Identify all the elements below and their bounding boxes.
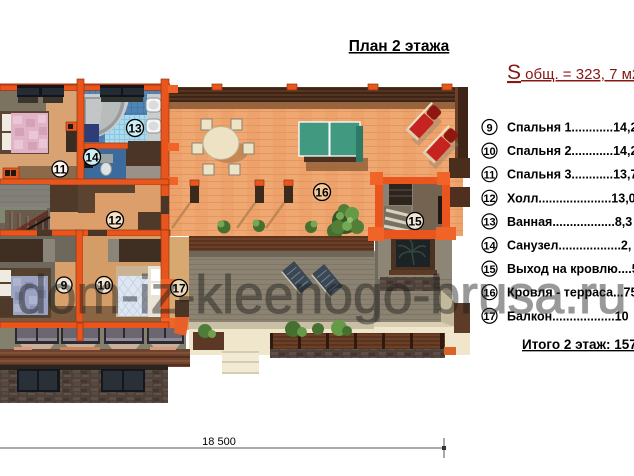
svg-text:14: 14 (85, 151, 99, 165)
svg-text:Ванная..................8,3: Ванная..................8,3 (507, 215, 632, 229)
svg-text:План 2 этажа: План 2 этажа (349, 38, 450, 55)
svg-text:16: 16 (315, 186, 329, 200)
svg-text:Холл.....................13,0: Холл.....................13,0 (507, 191, 634, 205)
svg-text:12: 12 (483, 193, 495, 205)
svg-text:Спальня 2............14,2: Спальня 2............14,2 (507, 144, 634, 158)
svg-text:10: 10 (483, 146, 495, 158)
svg-text:Спальня 1............14,2: Спальня 1............14,2 (507, 121, 634, 135)
svg-text:Санузел..................2,: Санузел..................2, (507, 239, 631, 253)
svg-text:Итого 2 этаж: 157,: Итого 2 этаж: 157, (522, 337, 634, 352)
svg-text:11: 11 (484, 170, 496, 182)
svg-text:13: 13 (128, 122, 142, 136)
svg-text:dom-iz-kleenogo-brusa.ru: dom-iz-kleenogo-brusa.ru (17, 266, 627, 325)
svg-text:9: 9 (486, 122, 492, 134)
svg-text:15: 15 (408, 215, 422, 229)
svg-text:Спальня 3............13,7: Спальня 3............13,7 (507, 168, 634, 182)
svg-text:13: 13 (483, 217, 495, 229)
svg-text:11: 11 (54, 163, 67, 177)
svg-text:14: 14 (483, 240, 496, 252)
svg-text:18 500: 18 500 (202, 436, 236, 448)
svg-text:12: 12 (108, 214, 122, 228)
